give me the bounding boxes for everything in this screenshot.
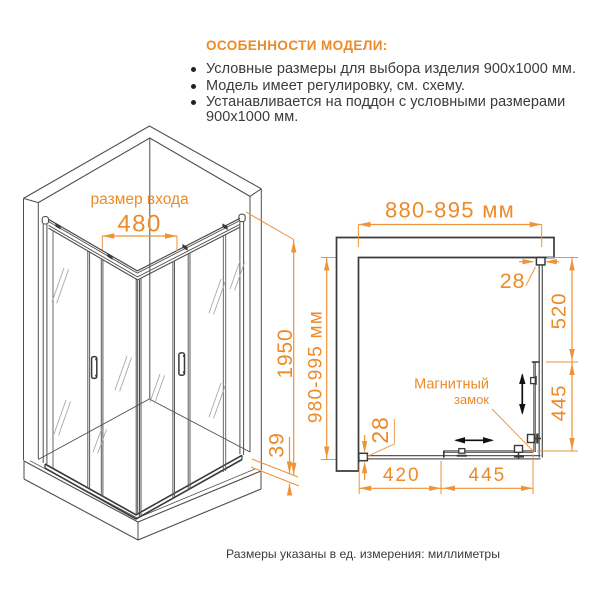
svg-text:520: 520 [547,293,570,330]
svg-text:39: 39 [265,432,289,458]
svg-text:480: 480 [117,211,162,238]
svg-text:28: 28 [367,416,393,443]
svg-text:размер входа: размер входа [91,191,190,208]
svg-text:420: 420 [383,465,421,486]
svg-text:445: 445 [469,465,507,486]
svg-text:замок: замок [454,392,489,407]
svg-text:1950: 1950 [274,329,297,379]
svg-text:28: 28 [500,269,526,293]
svg-text:Магнитный: Магнитный [414,377,489,393]
svg-text:880-895 мм: 880-895 мм [385,198,515,223]
svg-text:445: 445 [547,385,570,422]
svg-text:980-995 мм: 980-995 мм [306,310,327,423]
